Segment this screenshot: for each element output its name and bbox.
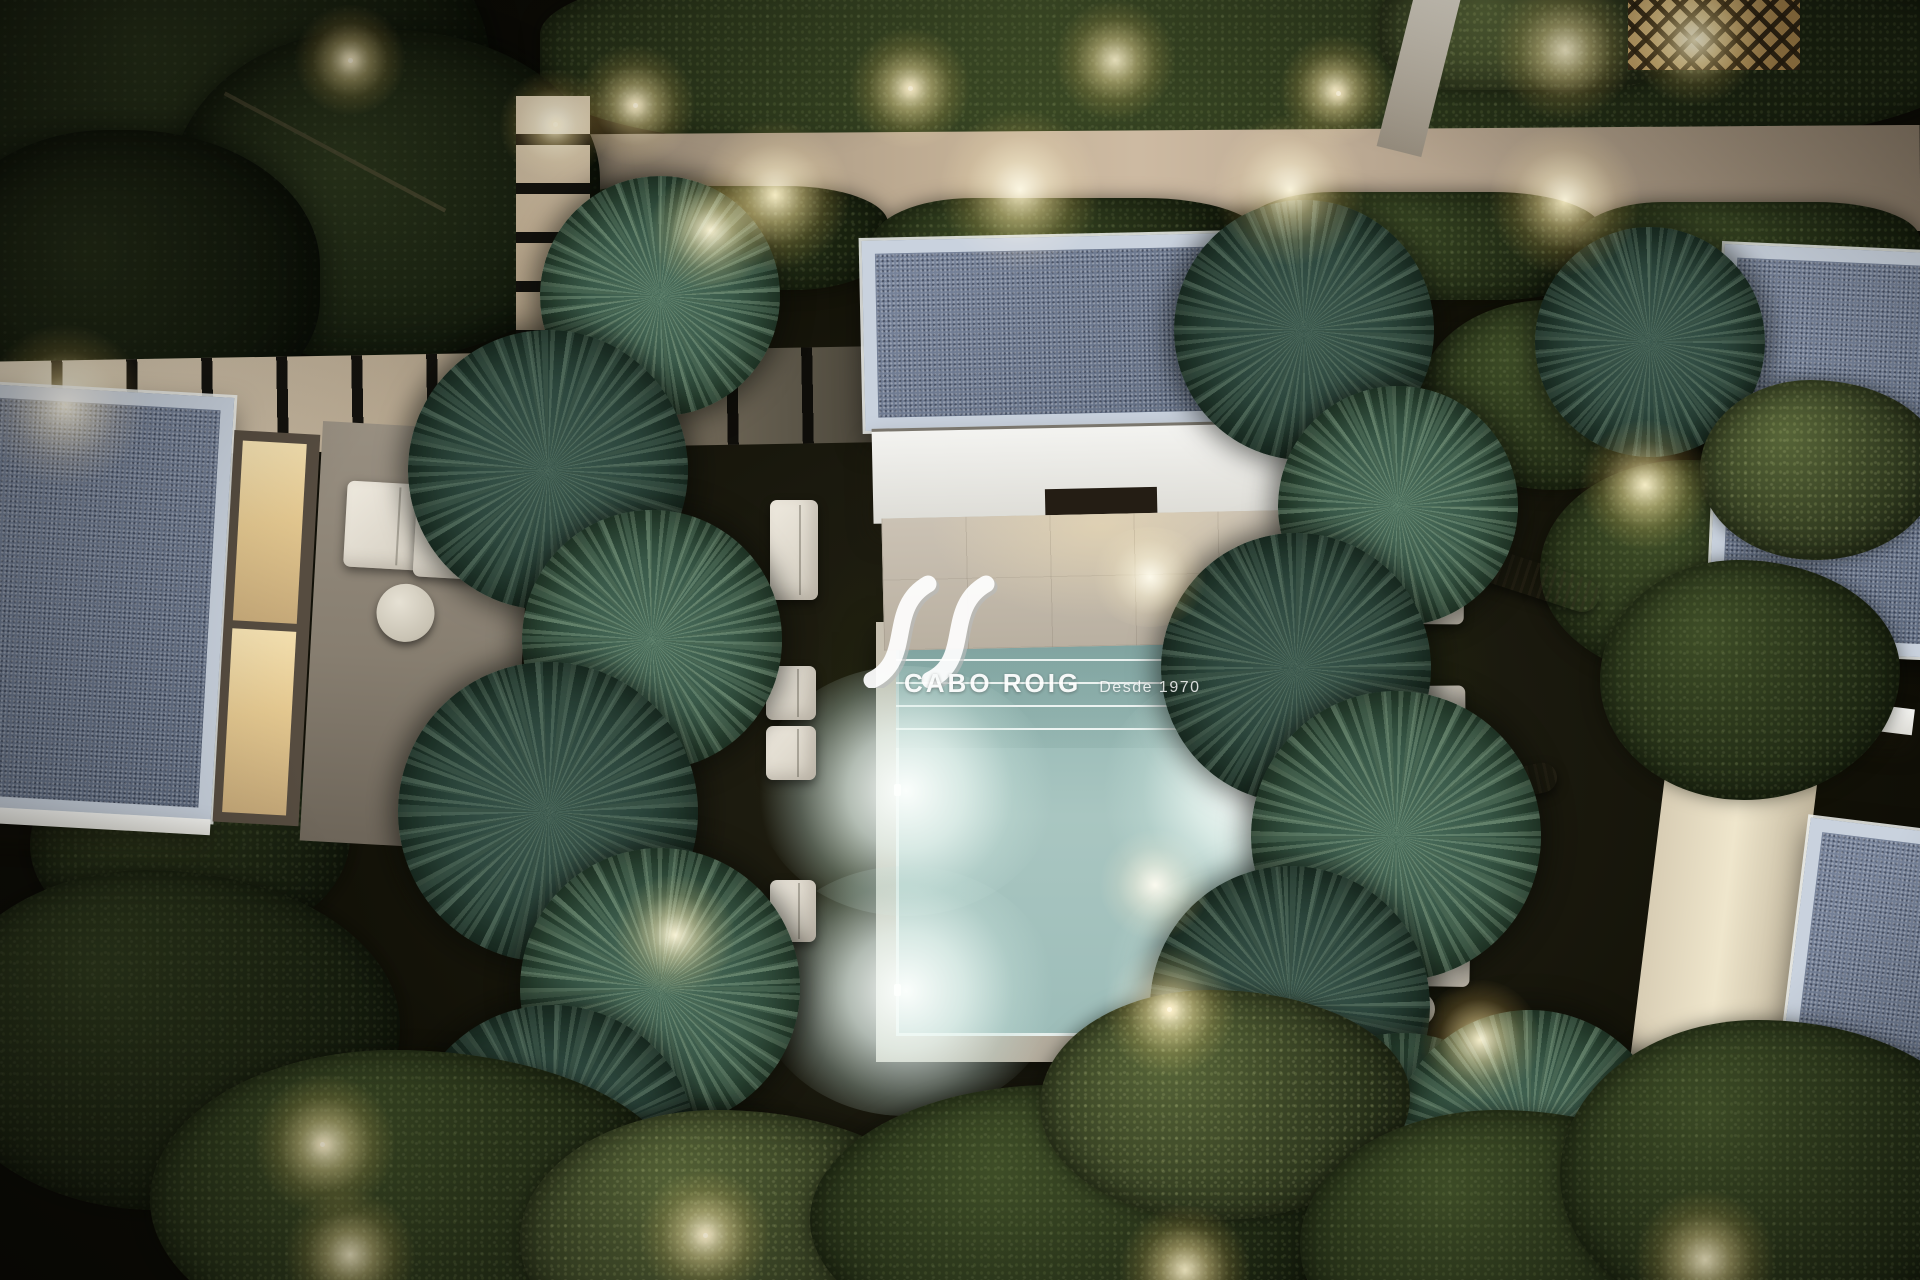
garden-light (908, 86, 913, 91)
window-pane (222, 628, 296, 815)
sun-lounger (766, 726, 816, 780)
pool-light-fixture (894, 984, 901, 996)
garden-light (1336, 91, 1341, 96)
watermark-tagline: Desde 1970 (1099, 679, 1200, 697)
roof-left (0, 384, 234, 822)
trellis-pergola (1628, 0, 1800, 70)
sun-lounger (770, 500, 818, 600)
bush-right-4 (1700, 380, 1920, 560)
ottoman (375, 582, 436, 643)
garden-light (320, 1142, 325, 1147)
aerial-villa-render: CABO ROIG Desde 1970 (0, 0, 1920, 1280)
garden-light (348, 58, 353, 63)
garden-light (1167, 1007, 1172, 1012)
garden-light (553, 122, 558, 127)
garden-light (633, 103, 638, 108)
garden-light (703, 1233, 708, 1238)
window-pane (233, 441, 307, 624)
watermark-text: CABO ROIG Desde 1970 (904, 668, 1201, 699)
watermark: CABO ROIG Desde 1970 (862, 556, 1202, 706)
watermark-brand: CABO ROIG (904, 668, 1081, 699)
pool-light-fixture (894, 784, 901, 796)
